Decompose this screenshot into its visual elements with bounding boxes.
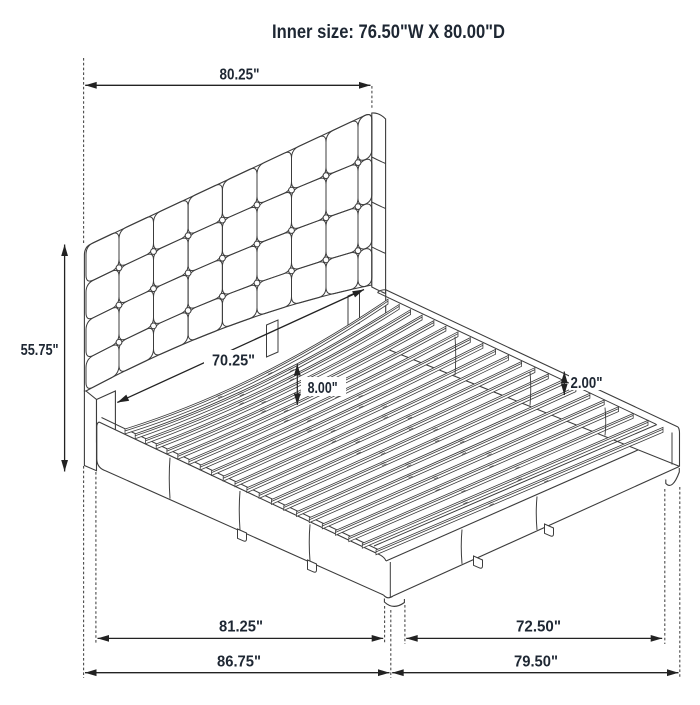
svg-text:8.00": 8.00" <box>308 380 338 397</box>
svg-text:55.75": 55.75" <box>21 342 59 359</box>
svg-text:2.00": 2.00" <box>571 375 603 392</box>
svg-text:81.25": 81.25" <box>219 619 263 636</box>
svg-text:86.75": 86.75" <box>217 654 261 671</box>
svg-text:70.25": 70.25" <box>212 353 255 370</box>
svg-text:80.25": 80.25" <box>220 67 260 84</box>
svg-text:79.50": 79.50" <box>514 654 558 671</box>
svg-text:Inner size: 76.50"W X 80.00"D: Inner size: 76.50"W X 80.00"D <box>272 21 505 43</box>
svg-text:72.50": 72.50" <box>516 619 561 636</box>
